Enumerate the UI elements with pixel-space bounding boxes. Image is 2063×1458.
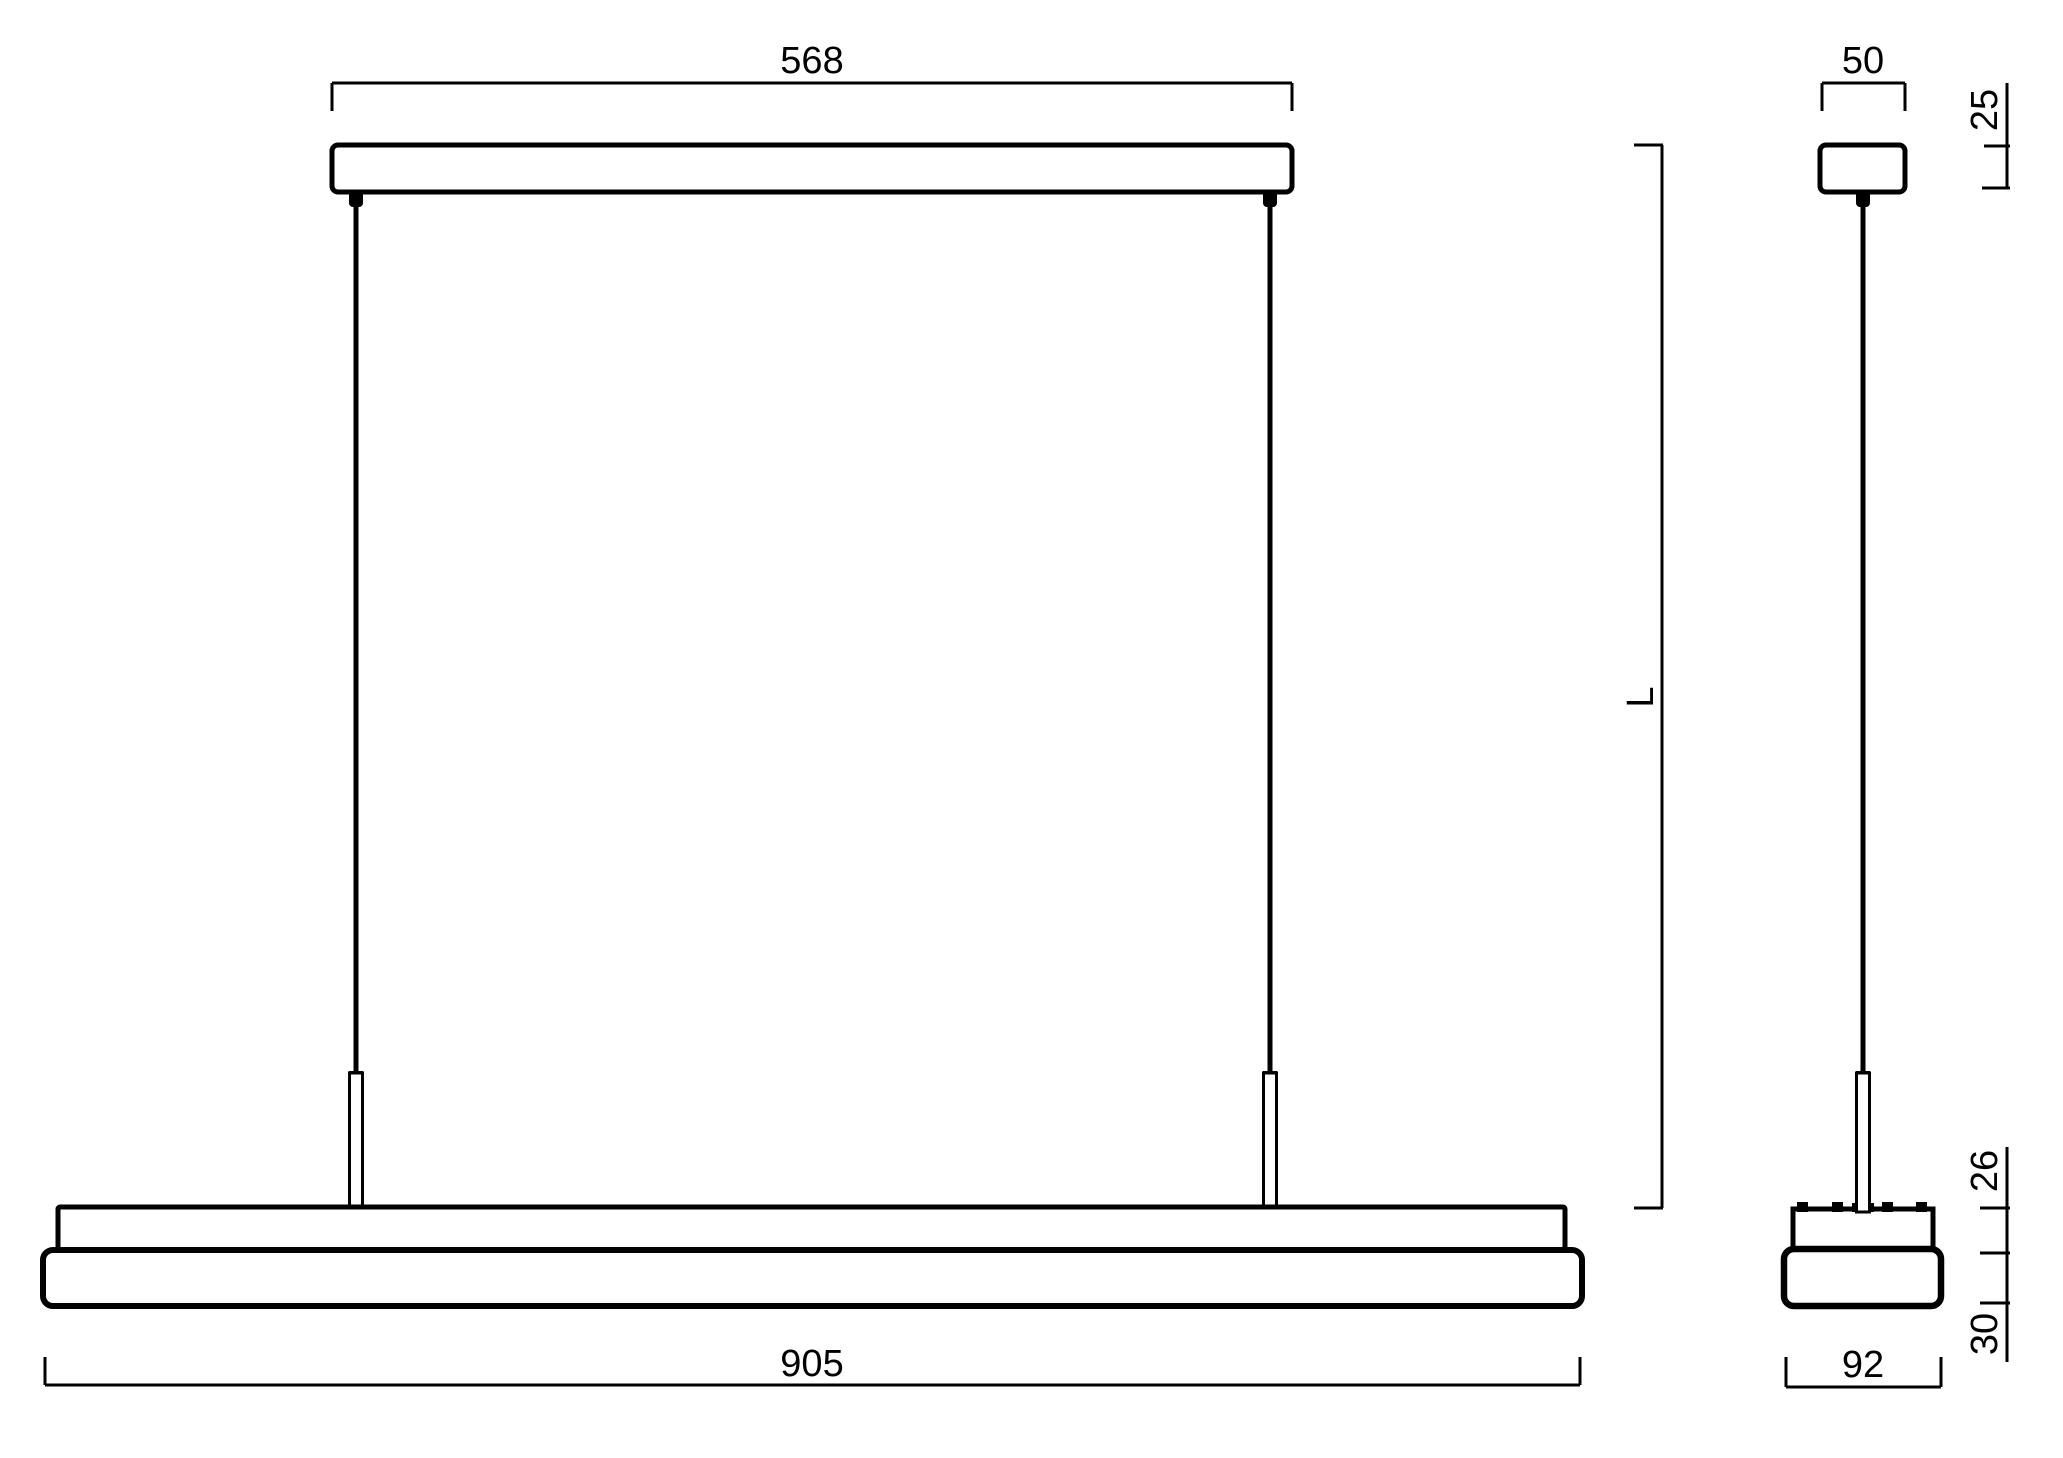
side-cable [1856, 190, 1870, 1080]
side-body-lower [1784, 1249, 1941, 1306]
side-dim-canopy-width-label: 50 [1842, 40, 1884, 82]
cable-gripper [1263, 190, 1277, 207]
cable-gripper [349, 190, 363, 207]
lug [1797, 1202, 1808, 1212]
side-dim-lower-height-label: 30 [1964, 1313, 2006, 1355]
side-canopy [1820, 145, 1905, 192]
cable-gripper [1856, 190, 1870, 207]
lug [1832, 1202, 1843, 1212]
cable-adjuster-tube [350, 1073, 363, 1207]
front-cable-left [349, 190, 363, 1207]
side-dim-canopy-width [1822, 83, 1905, 111]
front-body-upper [58, 1207, 1565, 1252]
front-dim-pendant-length-label: L [1620, 686, 1662, 707]
lug [1916, 1202, 1927, 1212]
front-view: 568 905 [43, 40, 1663, 1385]
cable-adjuster-tube [1264, 1073, 1277, 1207]
side-dim-upper-height-label: 26 [1964, 1150, 2006, 1192]
lug [1882, 1202, 1893, 1212]
front-canopy [332, 145, 1292, 192]
front-dim-canopy-width-label: 568 [780, 40, 843, 82]
cable-adjuster-tube [1857, 1073, 1870, 1212]
front-dim-pendant-length [1634, 145, 1663, 1208]
side-view: 50 25 [1784, 40, 2010, 1387]
side-dim-canopy-height-label: 25 [1964, 89, 2006, 131]
drawing-svg: 568 905 [0, 0, 2063, 1458]
technical-drawing: 568 905 [0, 0, 2063, 1458]
side-dim-body-width-label: 92 [1842, 1344, 1884, 1386]
side-body-upper [1793, 1209, 1933, 1252]
front-dim-body-length-label: 905 [780, 1343, 843, 1385]
front-body-lower [43, 1250, 1582, 1306]
front-cable-right [1263, 190, 1277, 1207]
front-dim-canopy-width [332, 83, 1292, 111]
